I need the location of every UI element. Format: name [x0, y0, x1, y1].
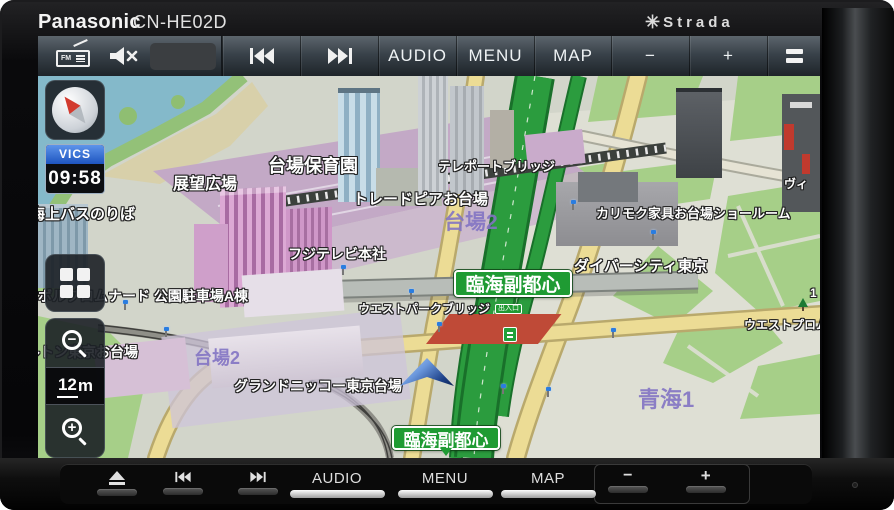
zoom-in-icon: + [62, 418, 88, 444]
traffic-signal-icon [650, 230, 656, 240]
volume-down-button[interactable]: − [611, 36, 689, 76]
volume-down-hw-button[interactable]: − [593, 470, 663, 493]
model-number: CN-HE02D [133, 12, 227, 33]
traffic-signal-icon [500, 384, 506, 394]
badge-pointer [440, 448, 452, 456]
menu-hw-button[interactable]: MENU [390, 470, 500, 498]
district-badge: 臨海副都心 [392, 426, 500, 450]
map-place-label: 展望広場 [173, 170, 237, 194]
vics-label: VICS [46, 145, 104, 164]
building-red [426, 314, 561, 344]
traffic-signal-icon [545, 387, 551, 397]
menu-grid-button[interactable] [45, 254, 105, 312]
brand-logo: Panasonic [38, 11, 141, 34]
prev-track-button[interactable] [222, 36, 300, 76]
map-place-label: ウエストプロムナード [744, 316, 820, 333]
right-bezel [822, 8, 894, 460]
map-area-label: 台場2 [444, 206, 498, 236]
source-status-area: FM [38, 36, 222, 76]
compass-needle-icon [59, 92, 91, 127]
now-playing-text-blurred [150, 43, 216, 70]
zoom-out-button[interactable]: − [46, 319, 104, 367]
clock: 09:58 [46, 164, 104, 194]
touchscreen: FM AUDIO MENU MAP − + [38, 36, 820, 458]
map-place-label: カリモク家具お台場ショールーム [596, 203, 791, 222]
reset-pinhole [852, 482, 858, 488]
highway-exit-icon [503, 327, 517, 342]
fm-radio-icon: FM [56, 45, 92, 67]
building [242, 269, 345, 318]
map-button[interactable]: MAP [534, 36, 611, 76]
prev-track-icon [247, 45, 277, 67]
map-hw-button[interactable]: MAP [493, 470, 603, 498]
building [578, 172, 638, 202]
map-place-label: ウエストパークブリッジ [358, 300, 490, 317]
top-bezel: Panasonic CN-HE02D ✳Strada [0, 0, 894, 36]
zoom-out-icon: − [62, 330, 88, 356]
construction-crane-area [782, 94, 820, 212]
map-place-label: 海上バスのりば [38, 203, 135, 224]
traffic-signal-icon [436, 322, 442, 332]
zoom-controls: − 12m + [45, 318, 105, 458]
navigation-head-unit: Panasonic CN-HE02D ✳Strada FM [0, 0, 894, 510]
next-track-icon [325, 45, 355, 67]
building [418, 76, 448, 198]
audio-hw-button[interactable]: AUDIO [282, 470, 392, 498]
star-icon: ✳ [645, 12, 660, 32]
district-badge: 臨海副都心 [454, 270, 572, 297]
building [450, 86, 484, 194]
grid-icon [60, 268, 90, 298]
tree-icon [798, 298, 808, 311]
map-place-label: ダイバーシティ東京 [574, 255, 708, 276]
map-place-label: 1 [810, 286, 817, 300]
vics-clock: VICS 09:58 [45, 144, 105, 194]
map-area-label: 台場2 [194, 344, 240, 370]
map-place-label: テレポートブリッジ [438, 156, 555, 175]
map-area-label: 青海1 [638, 382, 694, 414]
traffic-signal-icon [163, 327, 169, 337]
traffic-signal-icon [570, 200, 576, 210]
map-scale-indicator: 12m [46, 367, 104, 405]
volume-up-button[interactable]: + [689, 36, 767, 76]
building-dark-tower [676, 88, 722, 178]
eject-icon [109, 471, 125, 485]
map-view[interactable]: 台場保育園展望広場テレポートブリッジトレードピアお台場カリモク家具お台場ショール… [38, 76, 820, 458]
list-button[interactable] [767, 36, 820, 76]
map-place-label: 台場保育園 [268, 152, 358, 178]
traffic-signal-icon [122, 300, 128, 310]
next-track-button[interactable] [300, 36, 378, 76]
map-place-label: ヴィ [784, 175, 808, 192]
next-track-icon [246, 470, 270, 484]
traffic-signal-icon [408, 289, 414, 299]
compass-dial [52, 87, 98, 133]
map-place-label: グランドニッコー東京台場 [234, 376, 402, 396]
onscreen-menu-bar: FM AUDIO MENU MAP − + [38, 36, 820, 76]
audio-button[interactable]: AUDIO [378, 36, 456, 76]
map-place-label: フジテレビ本社 [288, 244, 386, 264]
strada-logo: ✳Strada [645, 12, 734, 33]
hardware-button-bar: AUDIO MENU MAP − + [0, 458, 894, 510]
building-blue-tower [338, 88, 380, 202]
map-place-label: トレードピアお台場 [353, 188, 488, 209]
eject-button[interactable] [82, 470, 152, 496]
compass-button[interactable] [45, 80, 105, 140]
prev-track-icon [171, 470, 195, 484]
menu-button[interactable]: MENU [456, 36, 534, 76]
muted-speaker-icon [108, 44, 138, 68]
prev-track-hw-button[interactable] [148, 470, 218, 495]
traffic-signal-icon [610, 328, 616, 338]
traffic-signal-icon [340, 265, 346, 275]
volume-up-hw-button[interactable]: + [671, 470, 741, 493]
list-icon [786, 45, 803, 67]
exit-mini-badge: 出入口 [495, 304, 522, 314]
zoom-in-button[interactable]: + [46, 405, 104, 457]
